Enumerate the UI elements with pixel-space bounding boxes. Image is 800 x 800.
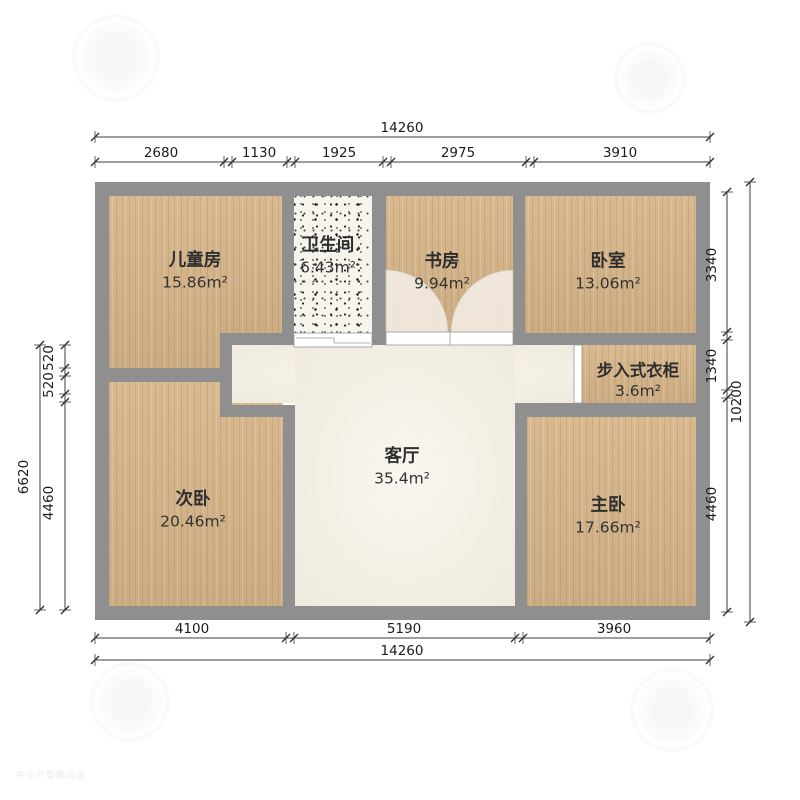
dim-top-total: 14260 (381, 120, 424, 136)
room-name: 客厅 (374, 446, 430, 469)
room-label-study: 书房 9.94m² (414, 251, 470, 294)
room-label-living-room: 客厅 35.4m² (374, 446, 430, 489)
room-area: 17.66m² (575, 517, 641, 537)
dim-bottom-seg: 4100 (175, 621, 209, 637)
dim-top-seg: 1130 (242, 145, 276, 161)
dim-right-total: 10200 (729, 381, 745, 424)
dim-right-seg: 3340 (704, 248, 720, 282)
closet-opening (574, 345, 582, 403)
dim-left-seg: 520 (41, 345, 57, 371)
room-name: 次卧 (160, 489, 226, 512)
dim-left-total: 6620 (16, 460, 32, 494)
dimension-overlay: 14260 2680 1130 1925 2975 3910 4100 5190… (0, 0, 800, 800)
dim-bottom-seg: 3960 (597, 621, 631, 637)
room-area: 9.94m² (414, 273, 470, 293)
room-name: 步入式衣柜 (597, 360, 680, 381)
room-area: 13.06m² (575, 273, 641, 293)
room-label-walkin-closet: 步入式衣柜 3.6m² (597, 360, 680, 402)
bathroom-sliding-door (294, 333, 372, 347)
room-label-second-bedroom: 次卧 20.46m² (160, 489, 226, 532)
dim-bottom-total: 14260 (381, 643, 424, 659)
dim-left-seg: 4460 (41, 486, 57, 520)
dim-right-seg: 1340 (704, 349, 720, 383)
room-name: 主卧 (575, 495, 641, 518)
dim-left-seg: 520 (41, 372, 57, 398)
dim-right-seg: 4460 (704, 487, 720, 521)
room-name: 卧室 (575, 251, 641, 274)
dim-top-seg: 2975 (441, 145, 475, 161)
room-area: 6.43m² (300, 257, 356, 277)
study-door-threshold (386, 332, 513, 345)
room-area: 3.6m² (597, 382, 680, 402)
room-name: 儿童房 (162, 250, 228, 273)
room-label-bathroom: 卫生间 6.43m² (300, 235, 356, 278)
room-label-children: 儿童房 15.86m² (162, 250, 228, 293)
room-label-bedroom: 卧室 13.06m² (575, 251, 641, 294)
dim-top-seg: 2680 (144, 145, 178, 161)
dim-top-seg: 1925 (322, 145, 356, 161)
floorplan-canvas: 中小户型图出品 (0, 0, 800, 800)
room-area: 35.4m² (374, 468, 430, 488)
dim-top-seg: 3910 (603, 145, 637, 161)
room-area: 20.46m² (160, 511, 226, 531)
room-name: 卫生间 (300, 235, 356, 258)
dim-bottom-seg: 5190 (387, 621, 421, 637)
room-label-master-bedroom: 主卧 17.66m² (575, 495, 641, 538)
room-area: 15.86m² (162, 272, 228, 292)
room-name: 书房 (414, 251, 470, 274)
